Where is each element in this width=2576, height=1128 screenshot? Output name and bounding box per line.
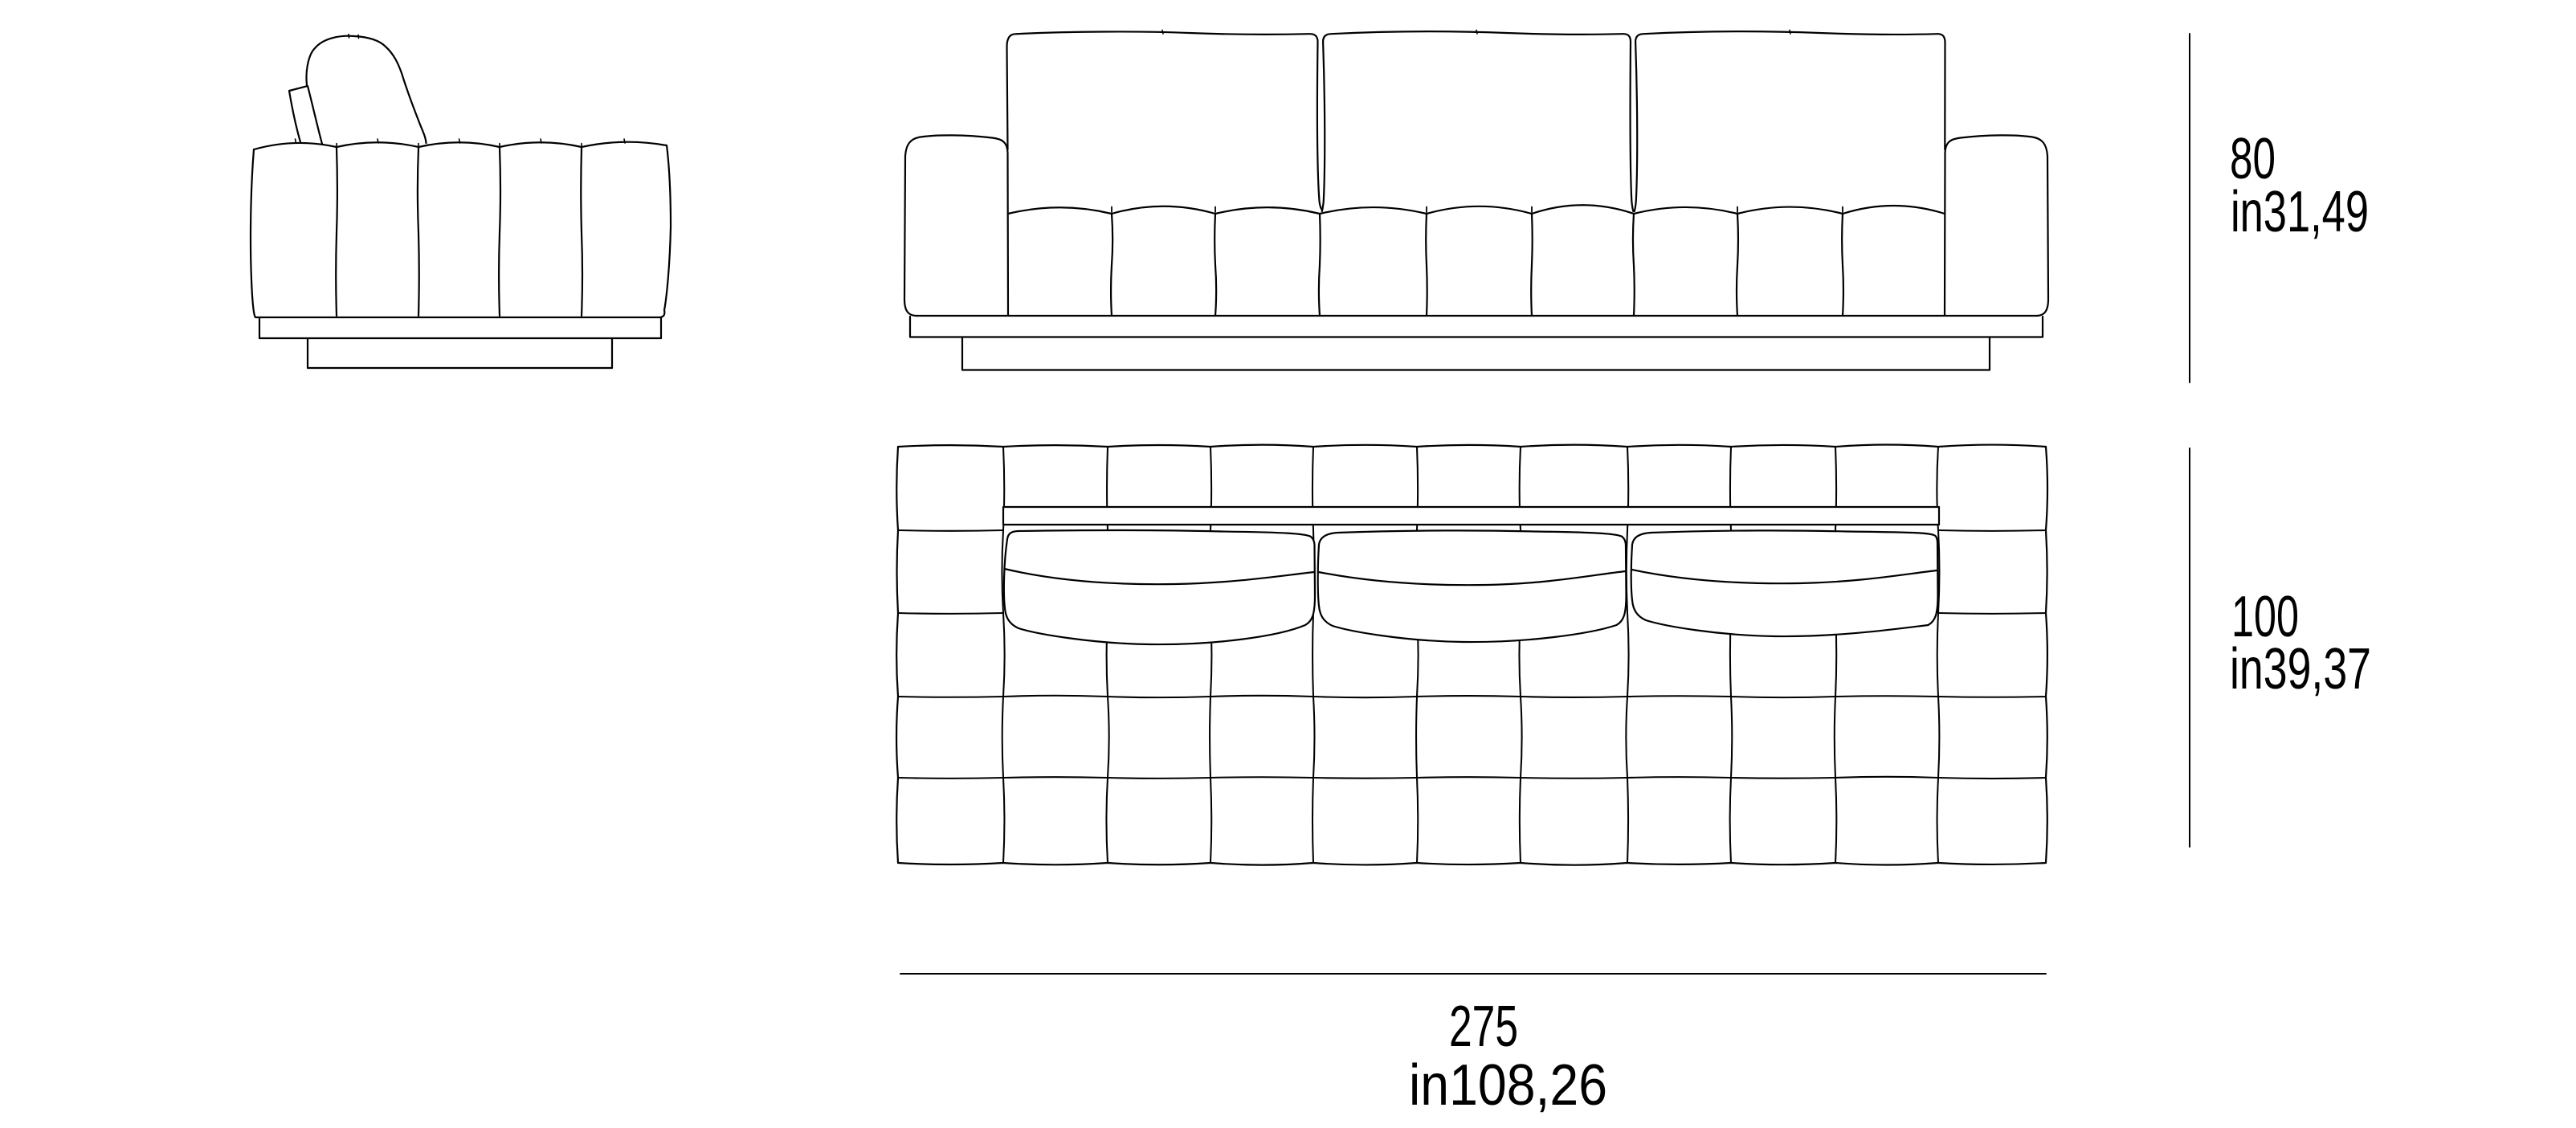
svg-text:275: 275 [1449, 994, 1518, 1059]
svg-text:in31,49: in31,49 [2231, 179, 2369, 244]
svg-text:in39,37: in39,37 [2230, 636, 2371, 701]
svg-text:in108,26: in108,26 [1409, 1052, 1607, 1118]
